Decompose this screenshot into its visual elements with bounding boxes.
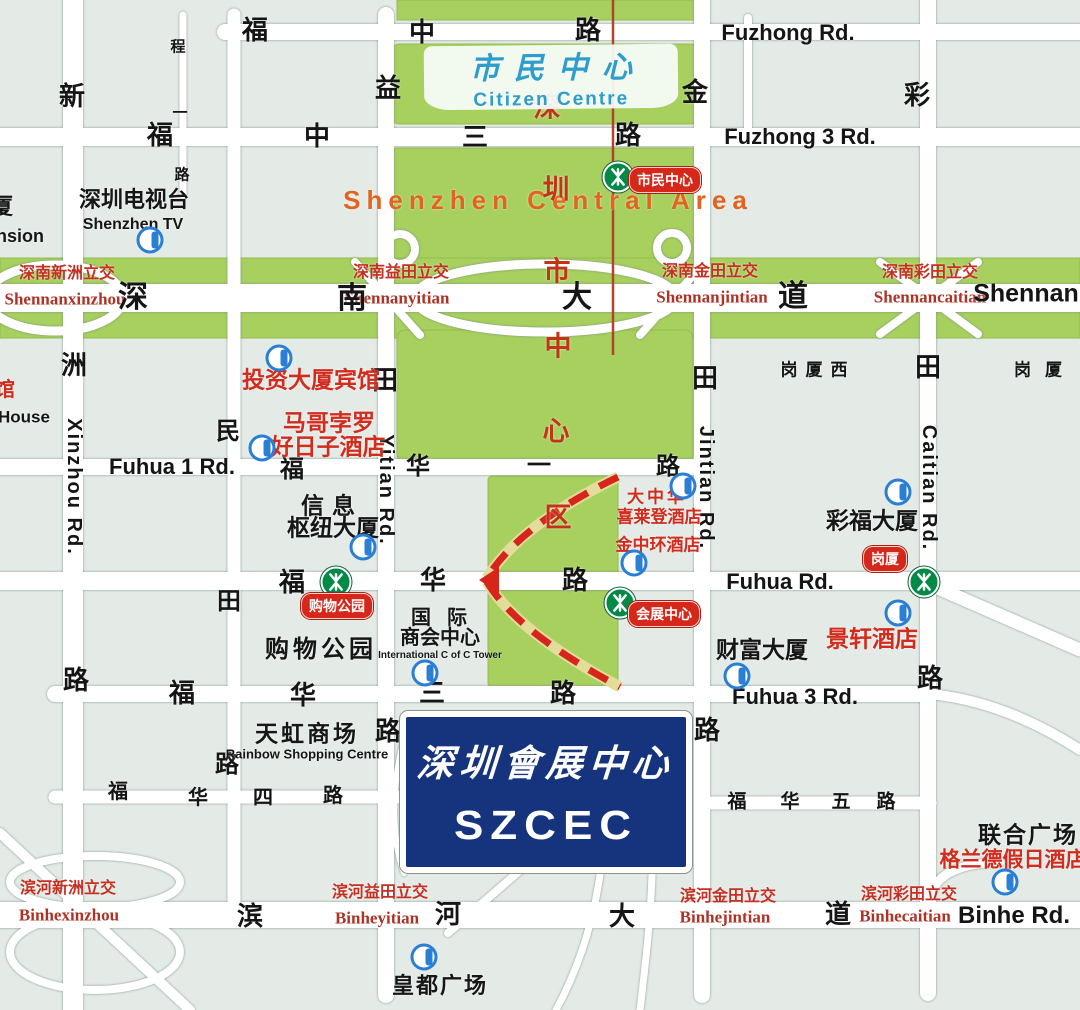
metro-icon [909, 567, 940, 598]
hotel-touzi: 投资大厦宾馆 [242, 369, 380, 392]
road-char-binhe: 道 [825, 901, 851, 927]
citizen-centre-title-en: Citizen Centre [473, 88, 629, 112]
road-char-xinzhou: 洲 [61, 352, 87, 378]
info-icon [992, 869, 1019, 896]
road-name-fuhua-en: Fuhua Rd. [726, 571, 834, 593]
metro-badge-shiminzhongxin: 市民中心 [629, 167, 701, 193]
interchange-en: Binheyitian [335, 910, 419, 927]
road-name-caitian-en: Caitian Rd. [919, 425, 939, 551]
axis-char: 区 [545, 505, 572, 532]
road-name-fuzhong-en: Fuzhong Rd. [721, 22, 854, 44]
road-char-yitian: 路 [375, 718, 401, 744]
road-char-fuhua3: 华 [290, 682, 316, 708]
road-char-binhe: 滨 [237, 903, 263, 929]
building-partial: 厦 [0, 196, 13, 218]
road-char-chengyi: 程 [170, 40, 185, 55]
road-char-shennan: 南 [337, 284, 367, 314]
interchange-en: Binhexinzhou [19, 907, 119, 924]
building-partial-en: nsion [0, 227, 44, 245]
building-icc: 国际 [411, 608, 483, 628]
interchange-en: Binhecaitian [859, 908, 951, 925]
building-partial-en: House [0, 409, 50, 426]
road-name-fuhua3-en: Fuhua 3 Rd. [732, 686, 858, 708]
road-char-fuhua: 路 [562, 567, 588, 593]
info-icon [412, 660, 439, 687]
road-name-shennan-en: Shennan [973, 282, 1079, 307]
building-icc-en: International C of C Tower [378, 651, 502, 661]
building-icc: 商会中心 [400, 628, 480, 648]
interchange-zh: 深南彩田立交 [882, 265, 978, 281]
metro-badge-gangxia: 岗厦 [863, 546, 907, 572]
road-char-yitian: 益 [375, 75, 401, 101]
info-icon [885, 479, 912, 506]
hotel-margo-polo: 好日子酒店 [271, 436, 386, 459]
road-char-xinzhou: 新 [59, 83, 85, 109]
metro-badge-gouwugongyuan: 购物公园 [301, 593, 373, 619]
road-char-caitian: 田 [915, 354, 941, 380]
road-char-fuzhong3: 三 [462, 124, 488, 150]
interchange-zh: 滨河新洲立交 [20, 881, 116, 897]
road-char-fuhua3: 福 [169, 680, 195, 706]
road-char-shennan: 大 [562, 283, 592, 313]
road-char-jintian: 金 [682, 79, 708, 105]
road-char-fuhua1: 一 [527, 454, 551, 478]
interchange-en: Shennanxinzhou [5, 291, 126, 308]
szcec-title-zh: 深圳會展中心 [415, 733, 677, 787]
interchange-zh: 滨河金田立交 [680, 889, 776, 905]
info-icon [350, 534, 377, 561]
road-char-chengyi: 一 [172, 106, 187, 121]
road-char-caitian: 路 [917, 665, 943, 691]
szcec-signboard: 深圳會展中心 SZCEC [400, 711, 692, 873]
road-char-fuhua5: 福 [727, 793, 746, 812]
road-char-xinzhou: 路 [63, 667, 89, 693]
info-icon [670, 473, 697, 500]
road-char-fuhua4: 四 [253, 788, 273, 808]
road-char-fuzhong: 福 [242, 17, 268, 43]
building-rainbow-en: Rainbow Shopping Centre [226, 748, 389, 761]
interchange-zh: 深南金田立交 [662, 264, 758, 280]
road-char-fuhua5: 五 [831, 793, 850, 812]
road-char-jintian: 路 [694, 717, 720, 743]
road-name-binhe-en: Binhe Rd. [958, 904, 1070, 928]
road-char-fuzhong: 中 [409, 19, 435, 45]
road-char-fuhua1: 华 [406, 455, 430, 479]
building-lianhe: 联合广场 [978, 824, 1078, 847]
interchange-zh: 深南益田立交 [353, 265, 449, 281]
road-char-fuhua4: 福 [108, 782, 128, 802]
szcec-title-en: SZCEC [454, 803, 638, 849]
road-char-fuhua5: 华 [780, 793, 799, 812]
info-icon [137, 227, 164, 254]
interchange-zh: 深南新洲立交 [19, 266, 115, 282]
road-name-xinzhou-en: Xinzhou Rd. [64, 418, 84, 556]
info-icon [885, 600, 912, 627]
building-shenzhen-tv: 深圳电视台 [79, 189, 189, 211]
road-char-fuhua4: 华 [188, 788, 208, 808]
hotel-jingxuan: 景轩酒店 [826, 628, 918, 651]
hotel-grand: 格兰德假日酒店 [940, 850, 1080, 871]
hotel-sheraton: 喜莱登酒店 [617, 509, 702, 526]
road-char-chengyi: 路 [174, 168, 189, 183]
axis-char: 中 [545, 334, 572, 361]
road-char-fuhua4: 路 [323, 786, 343, 806]
metro-badge-huizhanzhongxin: 会展中心 [628, 601, 700, 627]
road-char-mintian: 民 [216, 420, 240, 444]
interchange-zh: 滨河益田立交 [332, 885, 428, 901]
road-char-fuhua1: 福 [280, 458, 304, 482]
axis-char: 圳 [543, 177, 570, 204]
axis-char: 心 [543, 419, 570, 446]
building-partial: 馆 [0, 380, 15, 400]
building-rainbow: 天虹商场 [255, 723, 359, 746]
interchange-en: Shennancaitian [874, 289, 986, 306]
road-char-caitian: 彩 [904, 82, 930, 108]
road-char-fuhua5: 路 [876, 793, 895, 812]
road-char-fuhua: 福 [279, 569, 305, 595]
road-name-fuhua1-en: Fuhua 1 Rd. [109, 456, 235, 478]
road-char-fuhua: 华 [420, 567, 446, 593]
citizen-centre-banner: 市民中心 Citizen Centre [424, 44, 679, 111]
interchange-zh: 滨河彩田立交 [861, 887, 957, 903]
road-char-fuzhong: 路 [575, 17, 601, 43]
road-char-jintian: 田 [692, 365, 718, 391]
map-stage: 市民中心 Citizen Centre Shenzhen Central Are… [0, 0, 1080, 1010]
road-char-fuzhong3: 中 [304, 123, 330, 149]
area-gangxiaxi: 岗厦西 [781, 362, 856, 379]
road-char-shennan: 道 [778, 282, 808, 312]
road-char-fuhua3: 路 [550, 680, 576, 706]
road-char-binhe: 河 [435, 901, 461, 927]
interchange-en: Binhejintian [680, 909, 771, 926]
building-huangdu: 皇都广场 [392, 975, 488, 997]
building-shenzhen-tv-en: Shenzhen TV [83, 217, 183, 233]
interchange-en: Shennanjintian [656, 289, 768, 306]
road-char-fuzhong3: 路 [615, 122, 641, 148]
road-char-mintian: 田 [217, 590, 241, 614]
info-icon [411, 944, 438, 971]
building-fortune: 财富大厦 [716, 639, 808, 662]
road-name-fuzhong3-en: Fuzhong 3 Rd. [724, 126, 876, 148]
road-name-jintian-en: Jintian Rd. [696, 426, 716, 550]
building-caifu: 彩福大厦 [826, 510, 918, 533]
citizen-centre-title-zh: 市民中心 [456, 42, 646, 88]
area-shopping-park: 购物公园 [265, 638, 377, 662]
road-char-shennan: 深 [118, 283, 148, 313]
road-char-binhe: 大 [609, 903, 635, 929]
road-char-fuzhong3: 福 [147, 122, 173, 148]
area-gangxia: 岗厦 [1014, 362, 1076, 379]
info-icon [621, 550, 648, 577]
hotel-margo-polo: 马哥孛罗 [283, 412, 375, 435]
info-icon [724, 663, 751, 690]
info-icon [249, 435, 276, 462]
info-icon [266, 345, 293, 372]
